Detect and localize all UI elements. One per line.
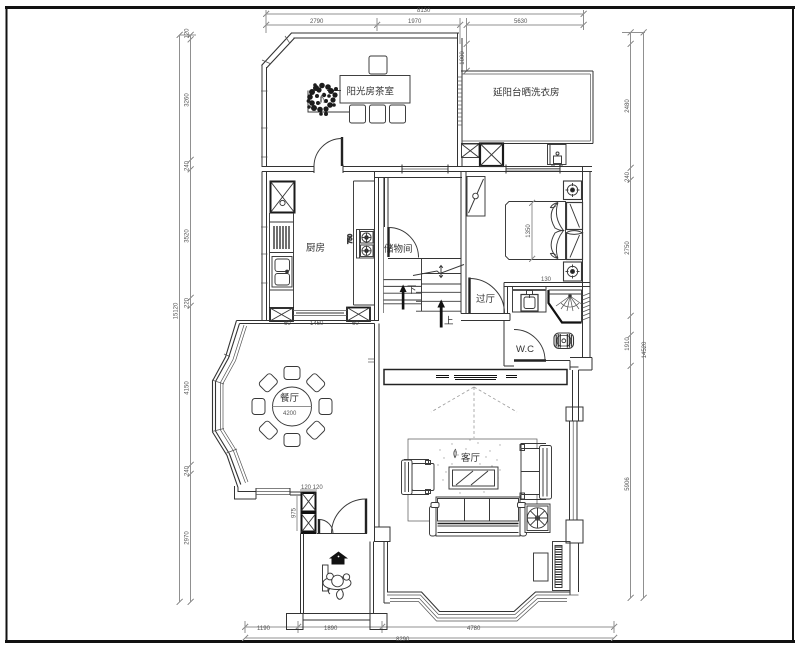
svg-text:下: 下 xyxy=(407,285,417,296)
svg-text:1000: 1000 xyxy=(460,51,466,65)
svg-text:2790: 2790 xyxy=(310,19,324,25)
svg-text:储物间: 储物间 xyxy=(384,243,413,255)
svg-text:120: 120 xyxy=(185,28,191,39)
svg-text:750: 750 xyxy=(348,233,354,244)
svg-text:1890: 1890 xyxy=(324,626,338,632)
svg-text:130: 130 xyxy=(541,277,552,283)
svg-text:过厅: 过厅 xyxy=(476,293,496,305)
svg-text:客厅: 客厅 xyxy=(461,452,481,464)
svg-text:上: 上 xyxy=(444,316,454,327)
svg-text:4150: 4150 xyxy=(185,381,191,395)
svg-text:延阳台晒洗衣房: 延阳台晒洗衣房 xyxy=(493,87,560,99)
svg-text:4780: 4780 xyxy=(467,626,481,632)
svg-text:4200: 4200 xyxy=(283,411,297,417)
svg-text:975: 975 xyxy=(292,507,298,518)
svg-text:2970: 2970 xyxy=(185,531,191,545)
svg-text:1970: 1970 xyxy=(408,19,422,25)
svg-text:220: 220 xyxy=(185,297,191,308)
svg-text:120 120: 120 120 xyxy=(301,485,323,491)
svg-text:阳光房茶室: 阳光房茶室 xyxy=(347,86,395,98)
svg-text:2480: 2480 xyxy=(625,99,631,113)
svg-text:厨房: 厨房 xyxy=(306,242,325,254)
svg-text:15120: 15120 xyxy=(174,302,180,319)
svg-text:5630: 5630 xyxy=(514,19,528,25)
svg-text:3520: 3520 xyxy=(185,229,191,243)
svg-text:W.C: W.C xyxy=(516,344,534,355)
svg-text:14520: 14520 xyxy=(642,341,648,358)
svg-text:1350: 1350 xyxy=(526,224,532,238)
svg-text:3260: 3260 xyxy=(185,93,191,107)
svg-text:240: 240 xyxy=(625,171,631,182)
svg-text:2750: 2750 xyxy=(625,241,631,255)
svg-text:1910: 1910 xyxy=(625,337,631,351)
svg-text:8130: 8130 xyxy=(417,8,431,14)
svg-text:240: 240 xyxy=(185,160,191,171)
svg-text:1190: 1190 xyxy=(257,626,271,632)
svg-text:240: 240 xyxy=(185,465,191,476)
svg-text:8290: 8290 xyxy=(396,637,410,643)
svg-text:餐厅: 餐厅 xyxy=(280,392,300,404)
svg-text:5906: 5906 xyxy=(625,477,631,491)
